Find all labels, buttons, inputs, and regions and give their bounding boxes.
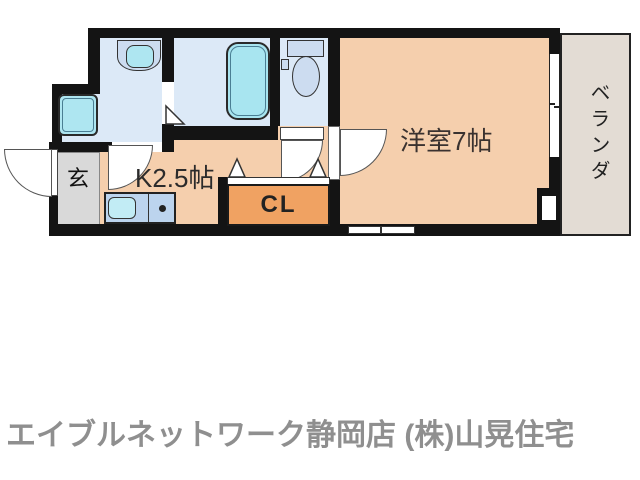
gas-burner [159,205,166,212]
kitchen-sink [108,197,136,219]
agency-caption: エイブルネットワーク静岡店 (株)山晃住宅 [6,410,574,454]
wall-bath-bottom [162,126,278,140]
kitchen-label: K2.5帖 [135,158,215,195]
floorplan: CL 玄 K2.5帖 洋室7帖 ベランダ エイブルネットワーク静岡店 (株)山晃… [0,0,640,480]
veranda-label: ベランダ [584,82,613,186]
bathtub [226,42,270,120]
veranda-window-tick2 [554,106,560,108]
wall-bath-toilet [270,28,280,126]
toilet-tank [287,40,324,57]
bottom-window-divider [380,226,382,234]
toilet-bowl [292,56,320,97]
wall-right-top [549,28,560,54]
kitchen-counter-divider [148,194,149,222]
closet-label: CL [261,191,297,219]
wall-washroom-bottom [52,142,112,152]
entrance-door-swing [4,149,52,197]
western-door-opening [328,126,340,180]
wash-basin-bowl [126,45,154,68]
wall-closet-stub [218,177,227,226]
toilet-handle [281,59,289,70]
veranda-window-tick1 [549,103,555,105]
toilet-door-leaf [280,127,324,140]
entrance-label: 玄 [64,161,92,193]
wall-top [88,28,560,38]
wall-mid-upper [328,28,340,126]
washing-machine-pan [58,94,98,136]
pipe-space [542,196,556,220]
closet-box: CL [227,184,330,226]
bath-door-opening [162,82,174,124]
western-room-label: 洋室7帖 [400,121,492,158]
